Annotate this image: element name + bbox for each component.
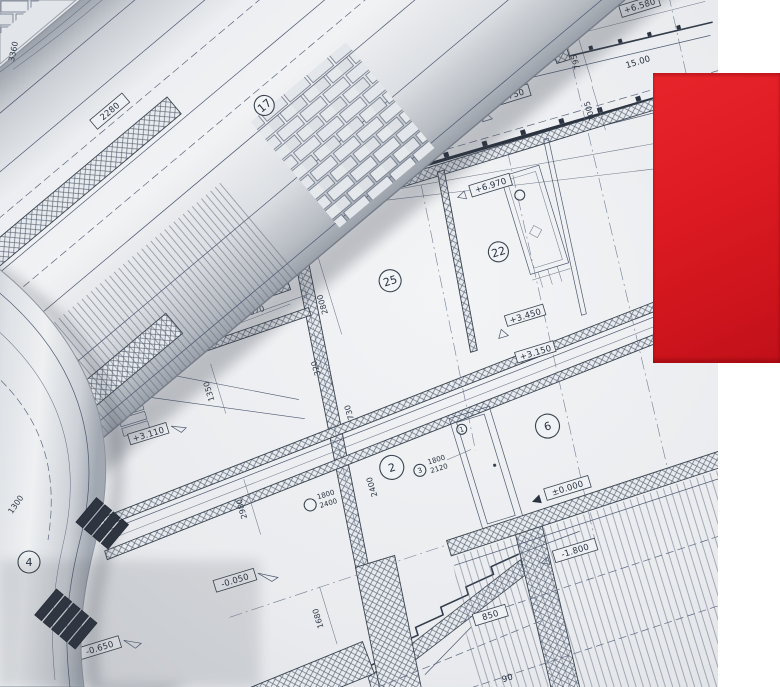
blueprint-photo: +9.450 сетка алюм. от насекомых +7.750 +… bbox=[0, 0, 718, 687]
blueprint-illustration: +9.450 сетка алюм. от насекомых +7.750 +… bbox=[0, 0, 718, 687]
screenshot-root: +9.450 сетка алюм. от насекомых +7.750 +… bbox=[0, 0, 780, 687]
bottom-left-shade bbox=[0, 560, 260, 687]
red-accent-block bbox=[653, 73, 780, 363]
